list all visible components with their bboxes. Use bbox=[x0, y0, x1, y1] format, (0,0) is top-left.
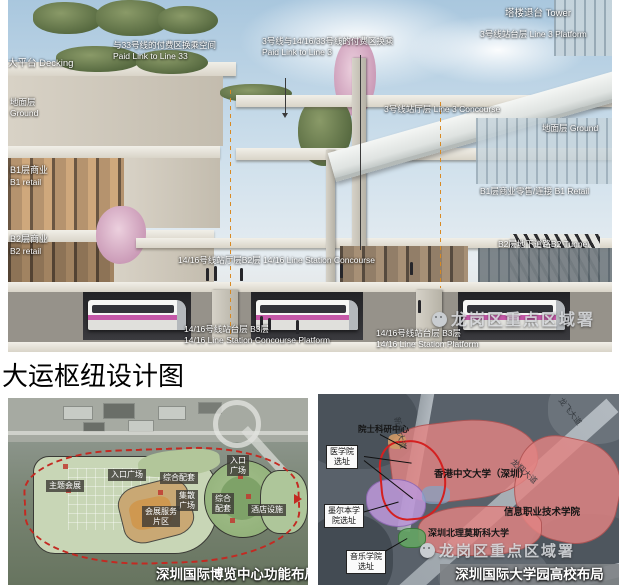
label-text: 综合配套 bbox=[163, 473, 195, 482]
label-text: 广场 bbox=[230, 466, 246, 475]
label-hotel: 酒店设施 bbox=[248, 504, 286, 516]
train-windows bbox=[260, 305, 346, 313]
label-text: 塔楼退台 Tower bbox=[505, 8, 571, 19]
label-text: B1层商业 bbox=[10, 165, 48, 175]
guide-line bbox=[230, 90, 231, 340]
label-paid-link-33: 与33号线的付费区换乘空间 Paid Link to Line 33 bbox=[113, 40, 216, 62]
wechat-logo-icon bbox=[420, 543, 435, 558]
label-melbourne-site: 墨尔本学 院选址 bbox=[324, 504, 364, 528]
label-text: 广场 bbox=[179, 501, 195, 510]
label-text: 3号线与14/16/33号线的付费区换乘 bbox=[262, 36, 393, 46]
label-main-expo: 主题会展 bbox=[46, 480, 84, 492]
red-mark bbox=[246, 494, 251, 499]
person bbox=[240, 268, 243, 281]
label-tower: 塔楼退台 Tower bbox=[505, 8, 571, 20]
label-text: 信息职业技术学院 bbox=[504, 507, 580, 518]
uni-caption: 深圳国际大学园高校布局 bbox=[440, 564, 619, 585]
page-title: 大运枢纽设计图 bbox=[2, 356, 184, 393]
caption-text: 大运枢纽设计图 bbox=[2, 362, 184, 391]
uni-watermark: 龙岗区重点区域署 bbox=[420, 540, 575, 561]
lower-glass bbox=[478, 248, 612, 284]
city-block bbox=[158, 406, 186, 420]
label-1416-platform-right: 14/16号线站台层 B3层 14/16 Line Station Platfo… bbox=[376, 328, 479, 350]
shrub bbox=[158, 6, 218, 34]
label-text: 选址 bbox=[358, 562, 374, 571]
label-text: 大平台 Decking bbox=[8, 58, 73, 69]
b3-slab bbox=[8, 282, 612, 292]
label-text: 音乐学院 bbox=[350, 552, 382, 561]
label-text: 14/16 Line Station Platform bbox=[376, 339, 479, 349]
arrowhead bbox=[282, 113, 288, 121]
label-paid-link-3: 3号线与14/16/33号线的付费区换乘 Paid Link to Line 3 bbox=[262, 36, 393, 58]
watermark: 龙岗区重点区域署 bbox=[432, 306, 595, 330]
label-text: 14/16号线站厅层B2层 14/16 Line Station Concour… bbox=[178, 255, 375, 265]
label-text: 医学院 bbox=[330, 447, 354, 456]
train-stripe bbox=[256, 315, 358, 320]
label-text: 深圳北理莫斯科大学 bbox=[428, 528, 509, 538]
label-b2-tunnel: B2层地下道路B2 Tunnel bbox=[498, 239, 589, 250]
wechat-logo-icon bbox=[432, 312, 447, 327]
person bbox=[418, 300, 421, 313]
label-text: B1 retail bbox=[10, 177, 41, 187]
person bbox=[206, 268, 209, 281]
leader-line bbox=[360, 55, 361, 250]
label-entrance-plaza-2: 入口 广场 bbox=[227, 455, 249, 476]
hub-rendering: 大平台 Decking 与33号线的付费区换乘空间 Paid Link to L… bbox=[8, 0, 612, 352]
label-text: Paid Link to Line 33 bbox=[113, 51, 188, 61]
label-text: Paid Link to Line 3 bbox=[262, 47, 332, 57]
label-text: 14/16号线站台层 B3层 bbox=[184, 324, 269, 334]
label-text: 主题会展 bbox=[49, 481, 81, 490]
person bbox=[340, 264, 343, 278]
university-map: 院士科研中心 香港中文大学（深圳） 信息职业技术学院 深圳北理莫斯科大学 医学院… bbox=[318, 394, 619, 585]
label-1416-concourse: 14/16号线站厅层B2层 14/16 Line Station Concour… bbox=[178, 255, 375, 266]
label-text: 配套 bbox=[215, 504, 231, 513]
train-front bbox=[349, 300, 358, 330]
label-1416-platform-left: 14/16号线站台层 B3层 14/16 Line Station Concou… bbox=[184, 324, 330, 346]
label-text: 院选址 bbox=[332, 516, 356, 525]
label-text: 3号线站厅层 Line 3 Concourse bbox=[384, 104, 500, 114]
label-ground-left: 地面层 Ground bbox=[10, 97, 38, 119]
train-stripe bbox=[88, 315, 186, 320]
label-text: B2层商业 bbox=[10, 234, 48, 244]
label-line3-platform: 3号线站台层 Line 3 Platform bbox=[480, 29, 587, 40]
label-support-2: 综合 配套 bbox=[212, 493, 234, 514]
terrace-wall bbox=[8, 76, 223, 146]
red-mark bbox=[158, 490, 163, 495]
label-text: Ground bbox=[10, 108, 38, 118]
person bbox=[410, 262, 413, 275]
urban-area bbox=[8, 398, 308, 442]
uni-caption-bar: 深圳国际大学园高校布局 bbox=[440, 564, 619, 585]
label-b2-retail-left: B2层商业 B2 retail bbox=[10, 234, 48, 257]
metro-train bbox=[88, 300, 186, 330]
label-b1-retail-right: B1层商业零售/连接 B1 Retail bbox=[480, 186, 589, 197]
label-text: 墨尔本学 bbox=[328, 506, 360, 515]
expo-map: 主题会展 入口广场 综合配套 集散 广场 会展服务 片区 入口 广场 综合 配套… bbox=[8, 398, 308, 585]
label-msu: 深圳北理莫斯科大学 bbox=[428, 526, 509, 539]
leader-line bbox=[285, 78, 286, 114]
article-figure: 大平台 Decking 与33号线的付费区换乘空间 Paid Link to L… bbox=[0, 0, 619, 585]
person bbox=[214, 266, 217, 281]
label-text: B1层商业零售/连接 B1 Retail bbox=[480, 186, 589, 196]
label-entrance-plaza-1: 入口广场 bbox=[108, 469, 146, 481]
label-line3-concourse: 3号线站厅层 Line 3 Concourse bbox=[384, 104, 500, 115]
label-decking: 大平台 Decking bbox=[8, 58, 73, 70]
label-text: 地面层 bbox=[10, 97, 36, 107]
label-text: 选址 bbox=[334, 457, 350, 466]
expo-caption: 深圳国际博览中心功能布局 bbox=[156, 563, 308, 583]
city-block bbox=[63, 406, 93, 420]
label-text: B2 retail bbox=[10, 246, 41, 256]
boundary-arrow bbox=[294, 494, 307, 504]
label-medical-site: 医学院 选址 bbox=[326, 445, 358, 469]
label-service-area: 会展服务 片区 bbox=[142, 506, 180, 527]
label-ground-right: 地面层 Ground bbox=[542, 123, 598, 134]
label-music-site: 音乐学院 选址 bbox=[346, 550, 386, 574]
label-b1-retail-left: B1层商业 B1 retail bbox=[10, 165, 48, 188]
label-text: 地面层 Ground bbox=[542, 123, 598, 133]
watermark-text: 龙岗区重点区域署 bbox=[451, 312, 595, 329]
label-text: 综合 bbox=[215, 494, 231, 503]
label-info-college: 信息职业技术学院 bbox=[504, 504, 580, 518]
red-mark bbox=[63, 464, 68, 469]
label-text: 会展服务 bbox=[145, 507, 177, 516]
guide-line bbox=[440, 102, 441, 288]
caption-text: 深圳国际博览中心功能布局 bbox=[156, 567, 308, 582]
label-text: 与33号线的付费区换乘空间 bbox=[113, 40, 216, 50]
train-windows bbox=[92, 305, 174, 313]
label-text: B2层地下道路B2 Tunnel bbox=[498, 239, 589, 249]
city-block bbox=[103, 403, 135, 419]
label-support-1: 综合配套 bbox=[160, 472, 198, 484]
label-text: 14/16 Line Station Concourse Platform bbox=[184, 335, 330, 345]
label-text: 集散 bbox=[179, 491, 195, 500]
label-text: 酒店设施 bbox=[251, 505, 283, 514]
red-mark bbox=[230, 518, 235, 523]
label-text: 入口 bbox=[230, 456, 246, 465]
caption-text: 深圳国际大学园高校布局 bbox=[455, 567, 604, 582]
road bbox=[8, 431, 308, 435]
shrub bbox=[33, 2, 103, 34]
watermark-text: 龙岗区重点区域署 bbox=[439, 543, 575, 560]
label-text: 3号线站台层 Line 3 Platform bbox=[480, 29, 587, 39]
label-text: 入口广场 bbox=[111, 470, 143, 479]
terrace-slab bbox=[8, 146, 220, 158]
label-text: 片区 bbox=[153, 517, 169, 526]
